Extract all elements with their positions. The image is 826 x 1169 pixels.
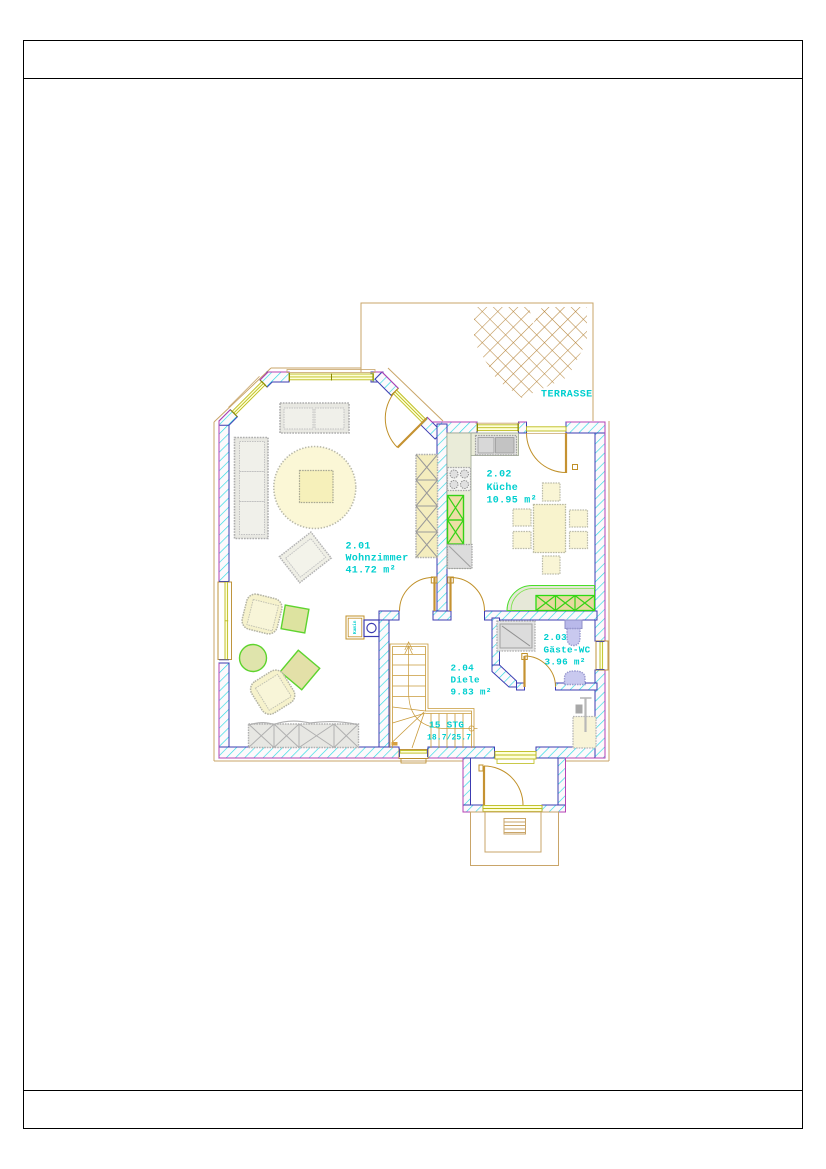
svg-text:Kamin: Kamin [352,620,358,634]
svg-text:2.03: 2.03 [544,632,568,643]
svg-text:10.95 m²: 10.95 m² [487,496,537,507]
svg-text:2.04: 2.04 [451,663,475,674]
svg-text:2.01: 2.01 [346,542,371,553]
svg-text:41.72 m²: 41.72 m² [346,566,396,577]
svg-text:2.02: 2.02 [487,470,512,481]
svg-text:9.83 m²: 9.83 m² [451,687,492,698]
svg-text:Küche: Küche [487,482,519,494]
svg-text:15 STG: 15 STG [429,720,464,731]
svg-text:Wohnzimmer: Wohnzimmer [346,553,409,565]
svg-text:Diele: Diele [451,675,481,686]
svg-text:18.7/25.7: 18.7/25.7 [427,734,471,743]
svg-text:TERRASSE: TERRASSE [541,390,593,401]
svg-text:3.96 m²: 3.96 m² [545,657,586,668]
svg-text:Gäste-WC: Gäste-WC [544,645,591,656]
